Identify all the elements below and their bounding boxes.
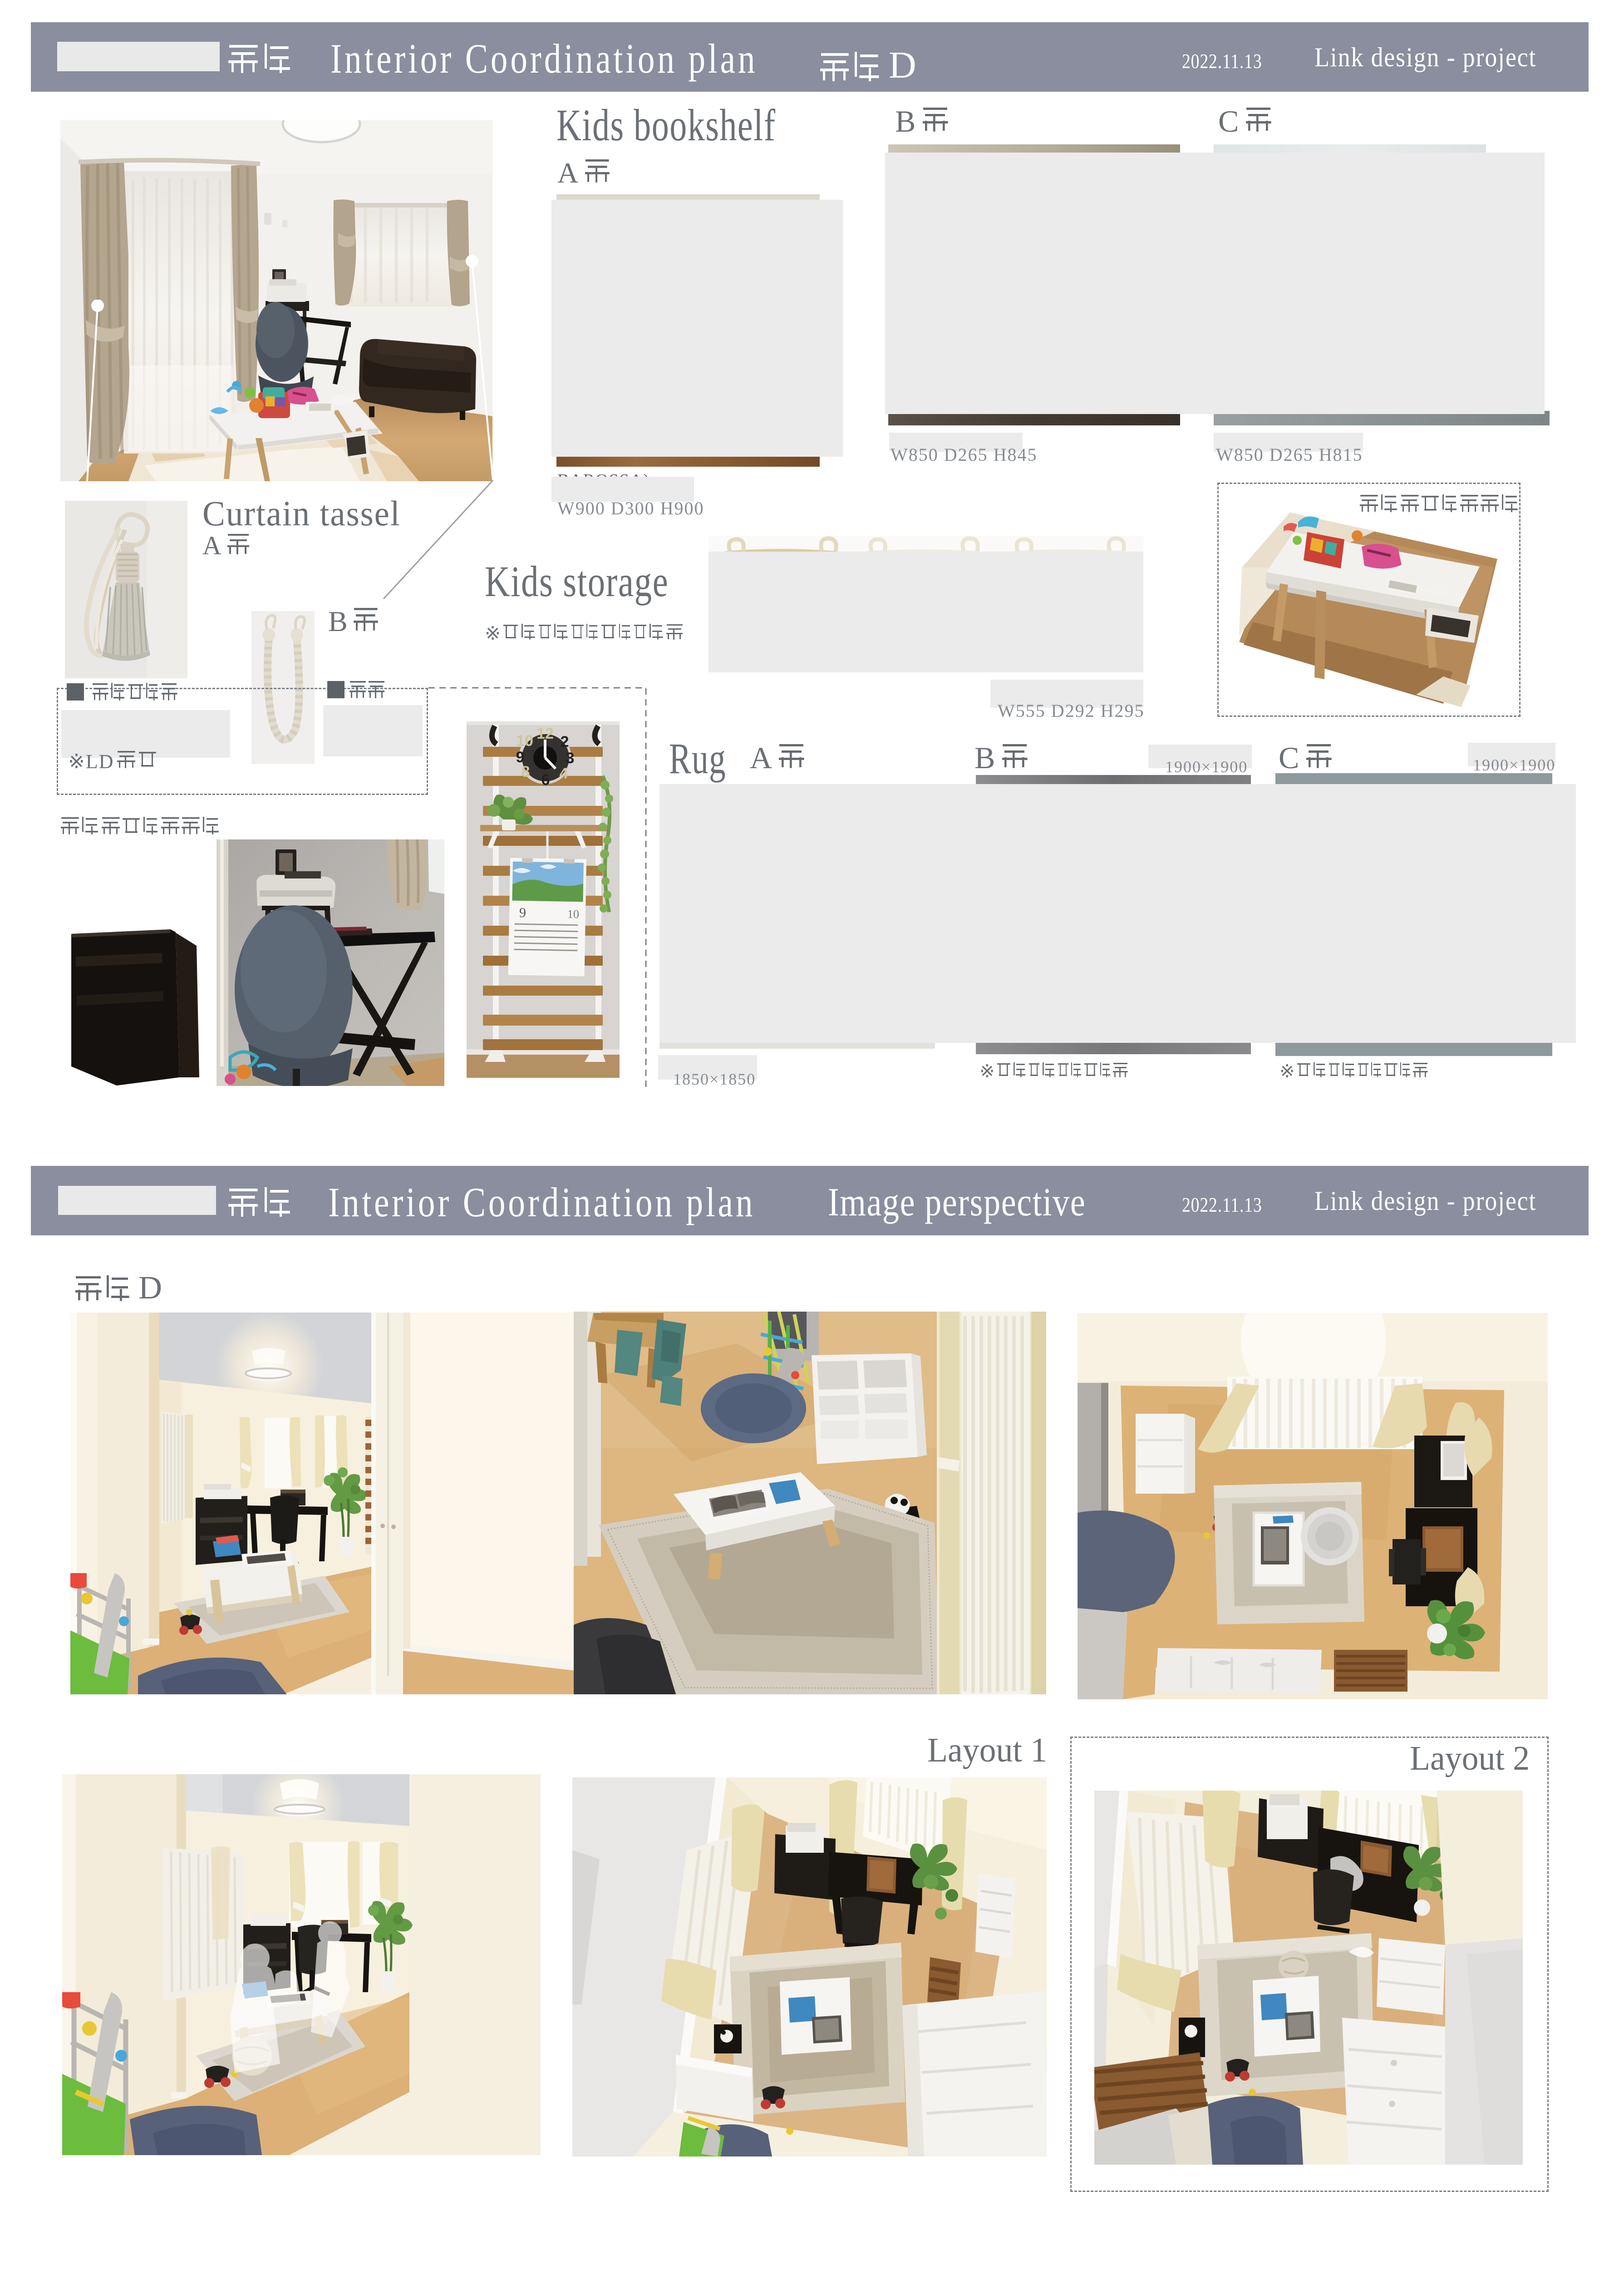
svg-text:3: 3 bbox=[566, 750, 575, 767]
svg-text:10: 10 bbox=[516, 732, 533, 750]
svg-text:9: 9 bbox=[519, 905, 527, 920]
svg-text:2: 2 bbox=[561, 733, 569, 750]
svg-text:10: 10 bbox=[567, 908, 580, 921]
svg-text:6: 6 bbox=[541, 771, 550, 789]
svg-text:4: 4 bbox=[560, 765, 568, 782]
svg-text:9: 9 bbox=[516, 749, 525, 766]
